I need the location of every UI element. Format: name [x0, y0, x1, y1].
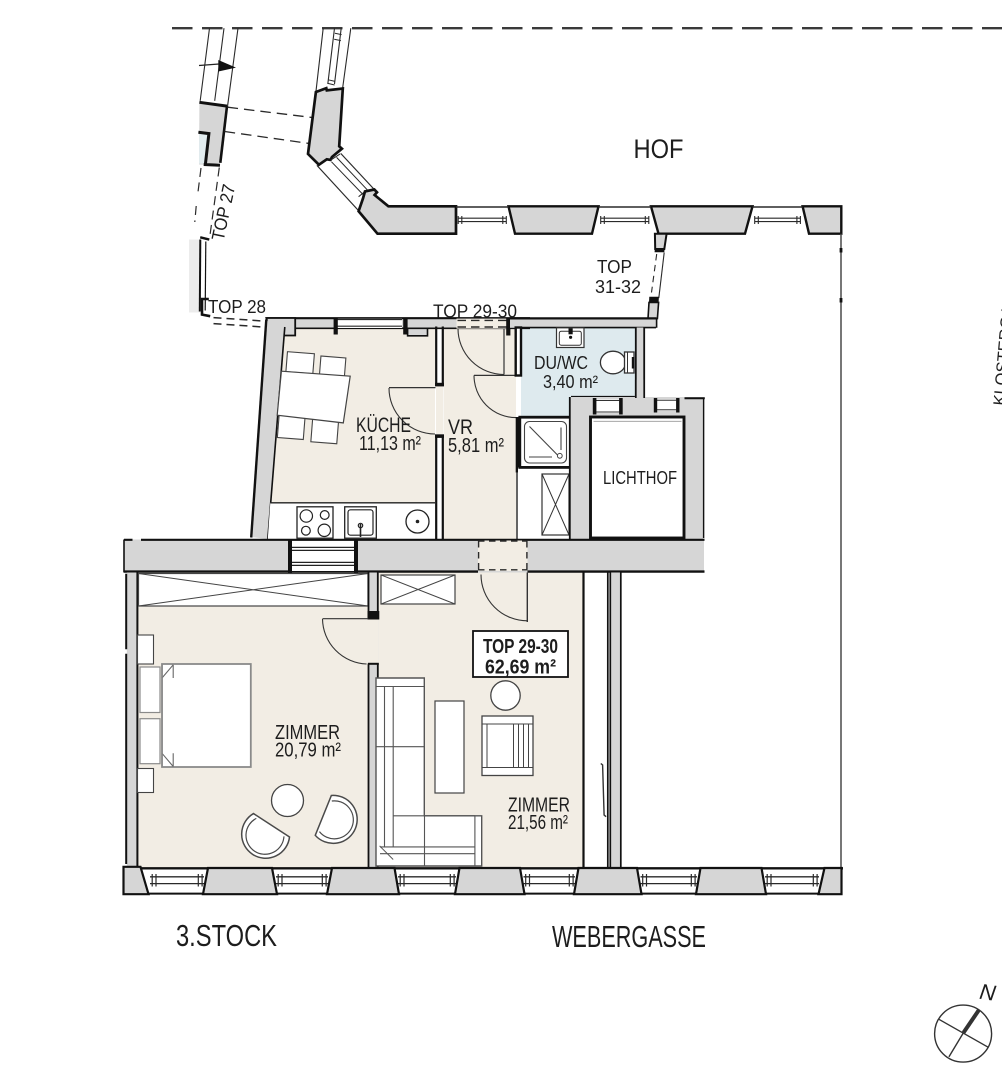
- svg-text:5,81 m²: 5,81 m²: [448, 435, 504, 457]
- svg-text:TOP 28: TOP 28: [208, 297, 266, 317]
- svg-text:31-32: 31-32: [595, 277, 641, 297]
- svg-text:TOP 29-30: TOP 29-30: [483, 636, 558, 658]
- svg-text:3.STOCK: 3.STOCK: [176, 918, 277, 953]
- svg-text:DU/WC: DU/WC: [534, 353, 588, 373]
- svg-text:3,40 m²: 3,40 m²: [543, 372, 598, 392]
- svg-text:HOF: HOF: [634, 134, 684, 164]
- svg-text:TOP: TOP: [597, 257, 632, 277]
- svg-text:11,13 m²: 11,13 m²: [359, 433, 421, 455]
- svg-text:WEBERGASSE: WEBERGASSE: [552, 919, 706, 954]
- svg-text:20,79 m²: 20,79 m²: [275, 740, 341, 762]
- svg-text:62,69 m²: 62,69 m²: [485, 657, 556, 679]
- svg-text:LICHTHOF: LICHTHOF: [603, 468, 677, 488]
- svg-text:21,56 m²: 21,56 m²: [508, 812, 568, 834]
- svg-text:TOP 29-30: TOP 29-30: [433, 302, 517, 322]
